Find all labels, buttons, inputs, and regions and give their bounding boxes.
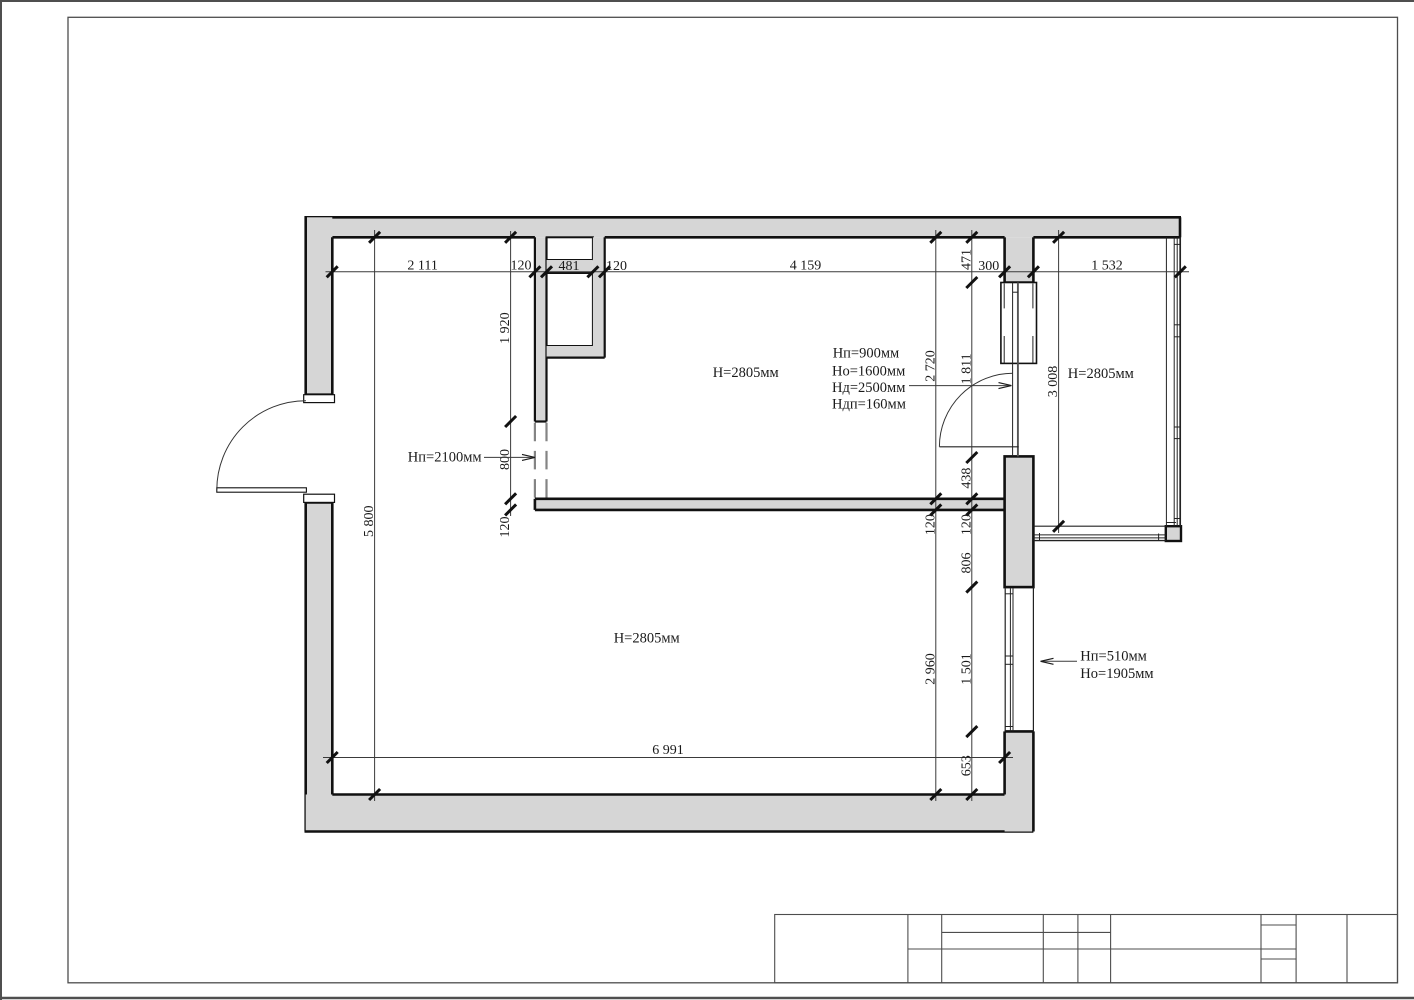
svg-text:2 720: 2 720 [923, 350, 938, 382]
svg-text:481: 481 [559, 259, 580, 274]
svg-text:Н=2805мм: Н=2805мм [1068, 366, 1134, 382]
svg-text:Нп=2100мм: Нп=2100мм [408, 450, 482, 466]
svg-text:Но=1905мм: Но=1905мм [1080, 666, 1153, 682]
svg-text:Ндп=160мм: Ндп=160мм [832, 397, 906, 413]
svg-text:1 501: 1 501 [959, 653, 974, 685]
svg-text:438: 438 [959, 468, 974, 489]
svg-text:653: 653 [959, 755, 974, 776]
svg-text:120: 120 [959, 514, 974, 535]
svg-text:2 960: 2 960 [923, 653, 938, 685]
svg-text:120: 120 [923, 514, 938, 535]
svg-text:6 991: 6 991 [652, 743, 684, 758]
svg-text:2 111: 2 111 [407, 259, 437, 274]
svg-text:Нп=510мм: Нп=510мм [1080, 648, 1147, 664]
svg-text:806: 806 [959, 553, 974, 574]
svg-text:1 532: 1 532 [1091, 259, 1123, 274]
svg-text:Но=1600мм: Но=1600мм [832, 363, 905, 379]
svg-text:1 920: 1 920 [498, 312, 513, 344]
svg-text:1 811: 1 811 [959, 353, 974, 384]
svg-text:Нп=900мм: Нп=900мм [833, 346, 900, 362]
svg-text:120: 120 [498, 517, 513, 538]
svg-text:Н=2805мм: Н=2805мм [614, 631, 680, 647]
svg-text:5 800: 5 800 [362, 505, 377, 537]
svg-text:120: 120 [606, 259, 627, 274]
svg-text:800: 800 [498, 449, 513, 470]
svg-text:300: 300 [978, 259, 999, 274]
svg-text:Нд=2500мм: Нд=2500мм [832, 380, 905, 396]
svg-text:Н=2805мм: Н=2805мм [713, 365, 779, 381]
svg-text:3 008: 3 008 [1046, 366, 1061, 398]
svg-text:471: 471 [959, 249, 974, 270]
svg-text:120: 120 [511, 259, 532, 274]
svg-text:4 159: 4 159 [790, 259, 822, 274]
